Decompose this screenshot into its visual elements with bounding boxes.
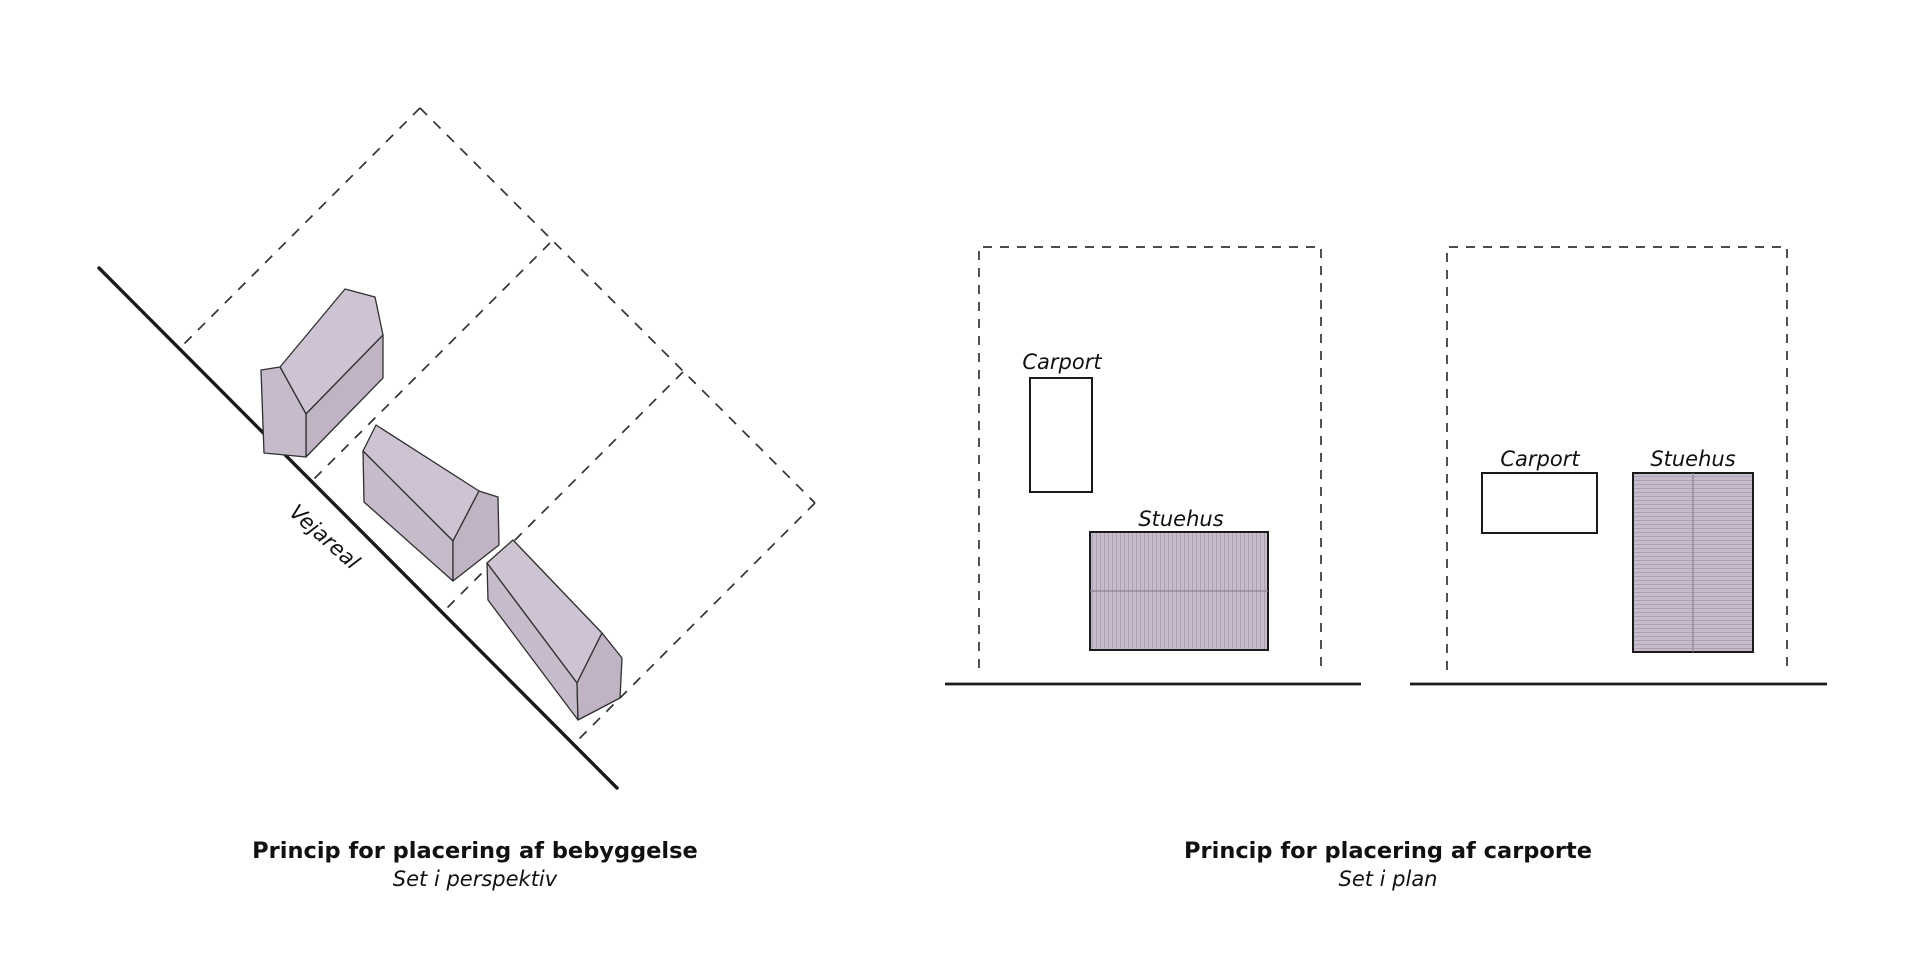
plan-2-carport-label: Carport: [1500, 447, 1580, 471]
parcel-edge-bottom-right: [575, 503, 815, 743]
right-caption-subtitle: Set i plan: [1338, 867, 1437, 891]
parcel-edge-top-right: [420, 108, 815, 503]
plan-1-carport-label: Carport: [1022, 350, 1102, 374]
plan-2-carport: [1482, 473, 1597, 533]
house-2: [363, 425, 499, 581]
parcel-edge-left: [180, 108, 420, 348]
principles-diagram: Vejareal Princip for placering af bebygg…: [0, 0, 1920, 960]
plan-1: Carport Stuehus: [945, 247, 1361, 684]
plan-2-stuehus-label: Stuehus: [1650, 447, 1735, 471]
perspective-figure: Vejareal Princip for placering af bebygg…: [99, 108, 815, 891]
plan-1-carport: [1030, 378, 1092, 492]
road-label: Vejareal: [285, 500, 365, 574]
house-1: [261, 289, 383, 457]
plan-figure: Carport Stuehus Carport Stuehus Princip …: [945, 247, 1827, 891]
right-caption-title: Princip for placering af carporte: [1184, 838, 1592, 864]
plan-2: Carport Stuehus: [1410, 247, 1827, 684]
left-caption-title: Princip for placering af bebyggelse: [252, 838, 698, 864]
plan-1-stuehus-label: Stuehus: [1138, 507, 1223, 531]
left-caption-subtitle: Set i perspektiv: [393, 867, 558, 891]
house-3: [487, 540, 622, 720]
